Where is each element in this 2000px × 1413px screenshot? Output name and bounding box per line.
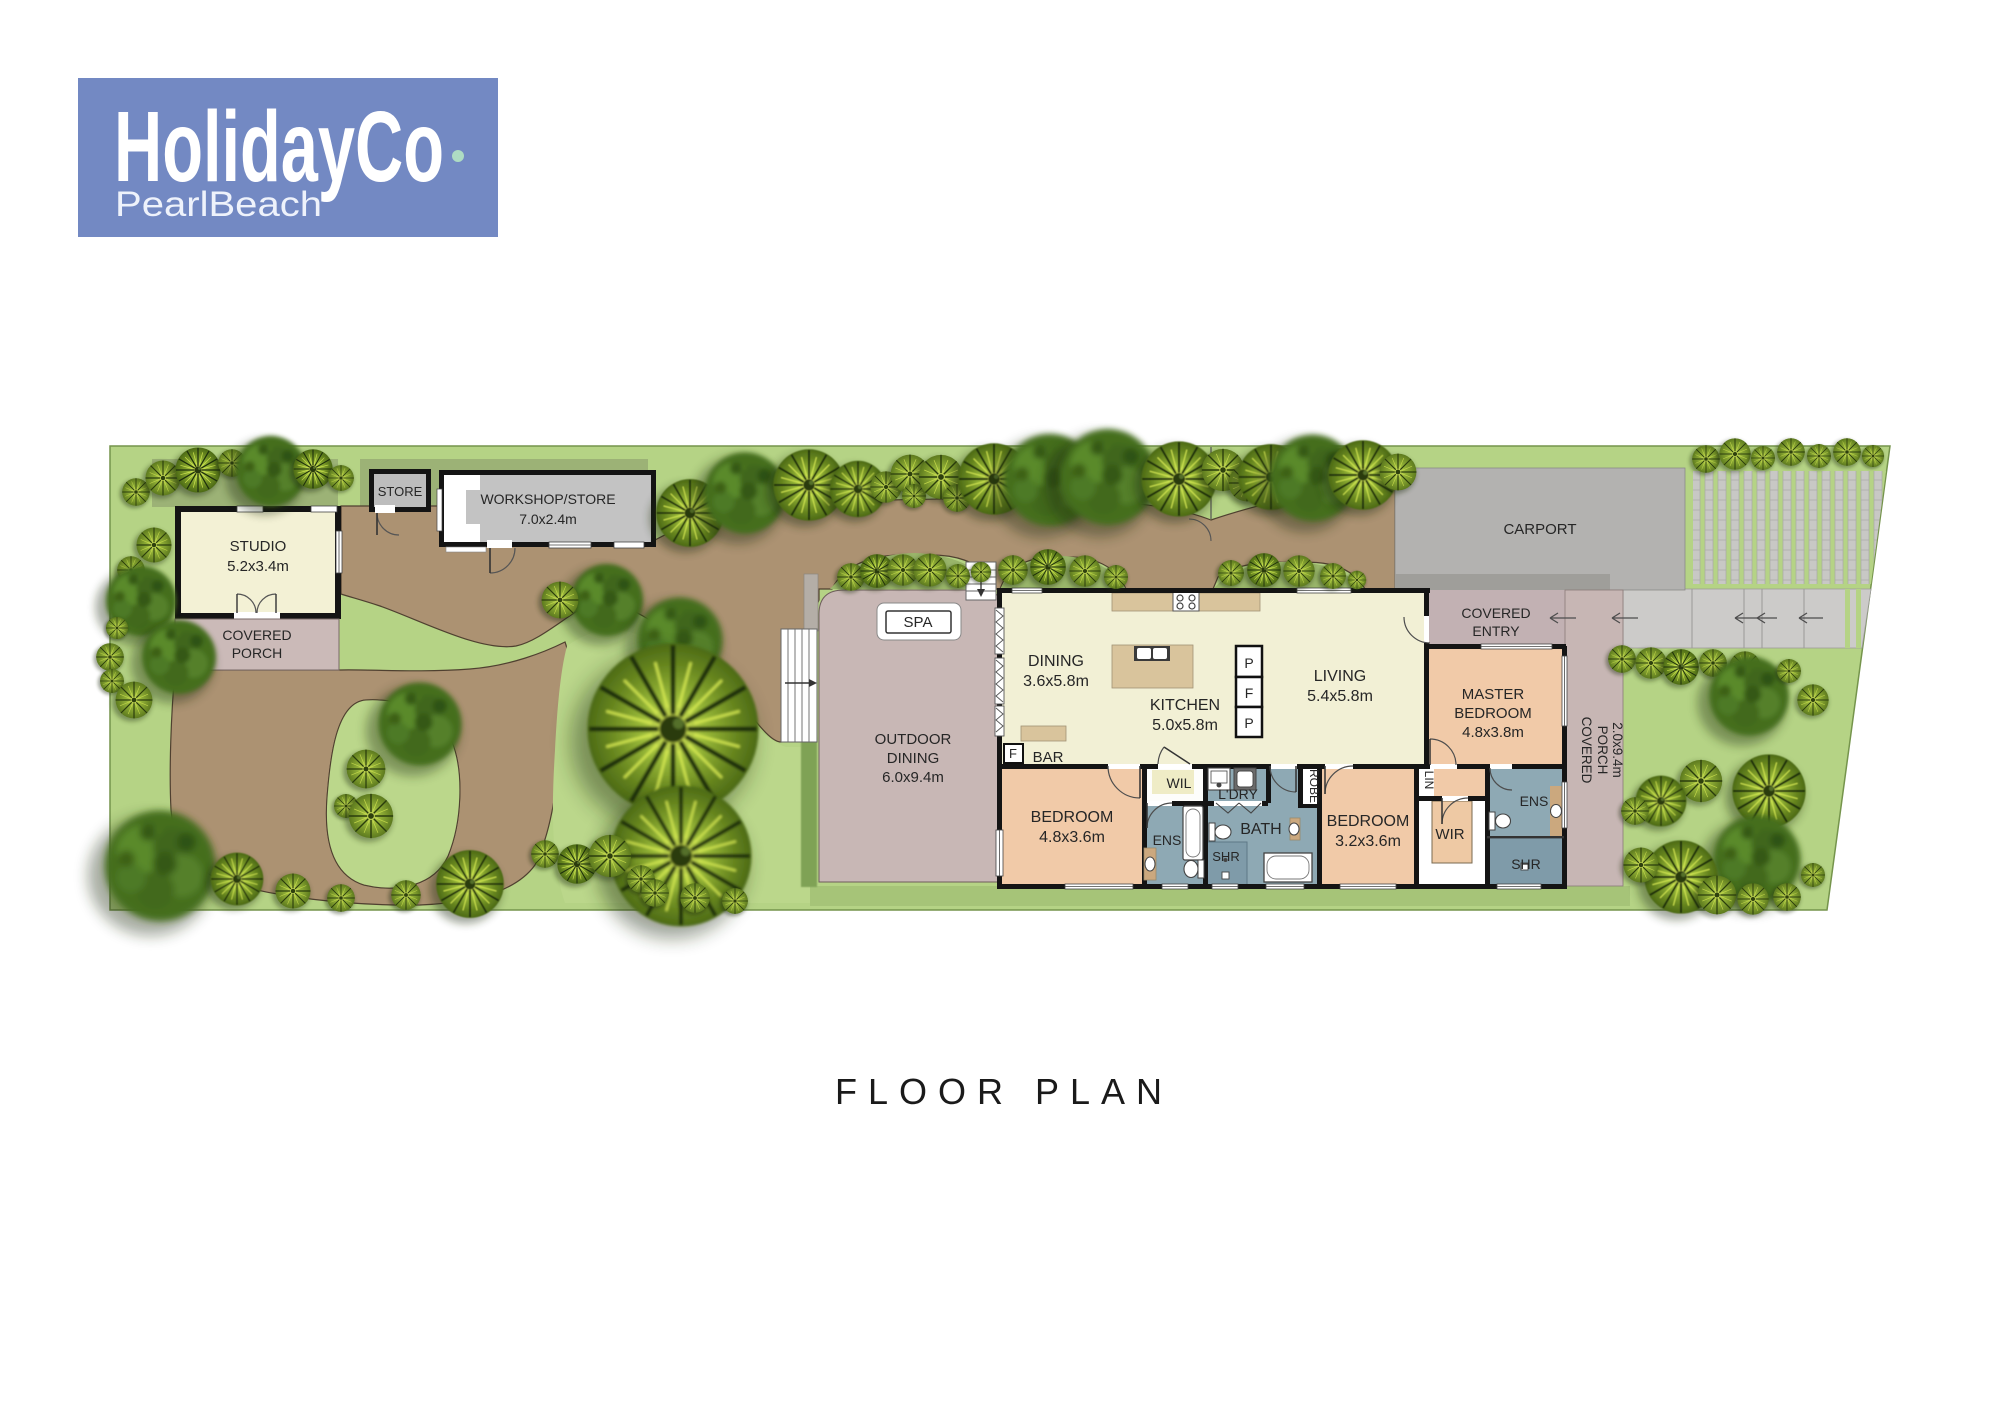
svg-text:DINING: DINING (887, 750, 940, 767)
svg-text:3.2x3.6m: 3.2x3.6m (1335, 833, 1401, 850)
svg-text:WIL: WIL (1167, 775, 1192, 791)
svg-text:LIVING: LIVING (1314, 668, 1366, 685)
svg-text:P: P (1244, 715, 1253, 731)
svg-text:2.0x9.4m: 2.0x9.4m (1610, 722, 1625, 778)
svg-text:COVERED: COVERED (222, 627, 291, 643)
svg-text:BEDROOM: BEDROOM (1031, 809, 1114, 826)
svg-text:ENS: ENS (1520, 793, 1549, 809)
svg-text:PORCH: PORCH (232, 645, 283, 661)
svg-text:7.0x2.4m: 7.0x2.4m (519, 511, 577, 527)
svg-text:BEDROOM: BEDROOM (1454, 705, 1532, 722)
svg-text:BATH: BATH (1240, 821, 1281, 838)
svg-text:ENS: ENS (1153, 832, 1182, 848)
svg-text:F: F (1009, 746, 1017, 761)
svg-text:4.8x3.8m: 4.8x3.8m (1462, 724, 1524, 741)
svg-text:KITCHEN: KITCHEN (1150, 697, 1220, 714)
svg-text:SHR: SHR (1511, 856, 1541, 872)
svg-text:STUDIO: STUDIO (230, 538, 287, 555)
svg-text:3.6x5.8m: 3.6x5.8m (1023, 673, 1089, 690)
svg-text:4.8x3.6m: 4.8x3.6m (1039, 829, 1105, 846)
svg-text:BEDROOM: BEDROOM (1327, 813, 1410, 830)
svg-text:F: F (1245, 685, 1254, 701)
svg-text:MASTER: MASTER (1462, 686, 1525, 703)
svg-text:5.0x5.8m: 5.0x5.8m (1152, 717, 1218, 734)
svg-text:P: P (1244, 655, 1253, 671)
svg-text:COVERED: COVERED (1579, 717, 1594, 784)
svg-text:WIR: WIR (1435, 826, 1464, 843)
svg-text:PearlBeach: PearlBeach (115, 185, 322, 224)
svg-text:WORKSHOP/STORE: WORKSHOP/STORE (480, 491, 615, 507)
svg-text:5.4x5.8m: 5.4x5.8m (1307, 688, 1373, 705)
svg-text:SPA: SPA (904, 614, 933, 631)
svg-text:CARPORT: CARPORT (1503, 521, 1576, 538)
svg-text:STORE: STORE (378, 484, 423, 499)
svg-text:5.2x3.4m: 5.2x3.4m (227, 558, 289, 575)
svg-text:FLOOR PLAN: FLOOR PLAN (835, 1071, 1173, 1112)
svg-text:SHR: SHR (1212, 849, 1239, 864)
svg-text:PORCH: PORCH (1595, 726, 1610, 775)
svg-text:L'DRY: L'DRY (1218, 786, 1258, 802)
svg-text:OUTDOOR: OUTDOOR (875, 731, 952, 748)
svg-text:ROBE: ROBE (1307, 769, 1321, 803)
svg-text:6.0x9.4m: 6.0x9.4m (882, 769, 944, 786)
svg-text:DINING: DINING (1028, 653, 1084, 670)
svg-text:LIN: LIN (1422, 771, 1436, 790)
svg-text:COVERED: COVERED (1461, 605, 1530, 621)
svg-text:BAR: BAR (1033, 749, 1064, 766)
svg-text:ENTRY: ENTRY (1472, 623, 1520, 639)
